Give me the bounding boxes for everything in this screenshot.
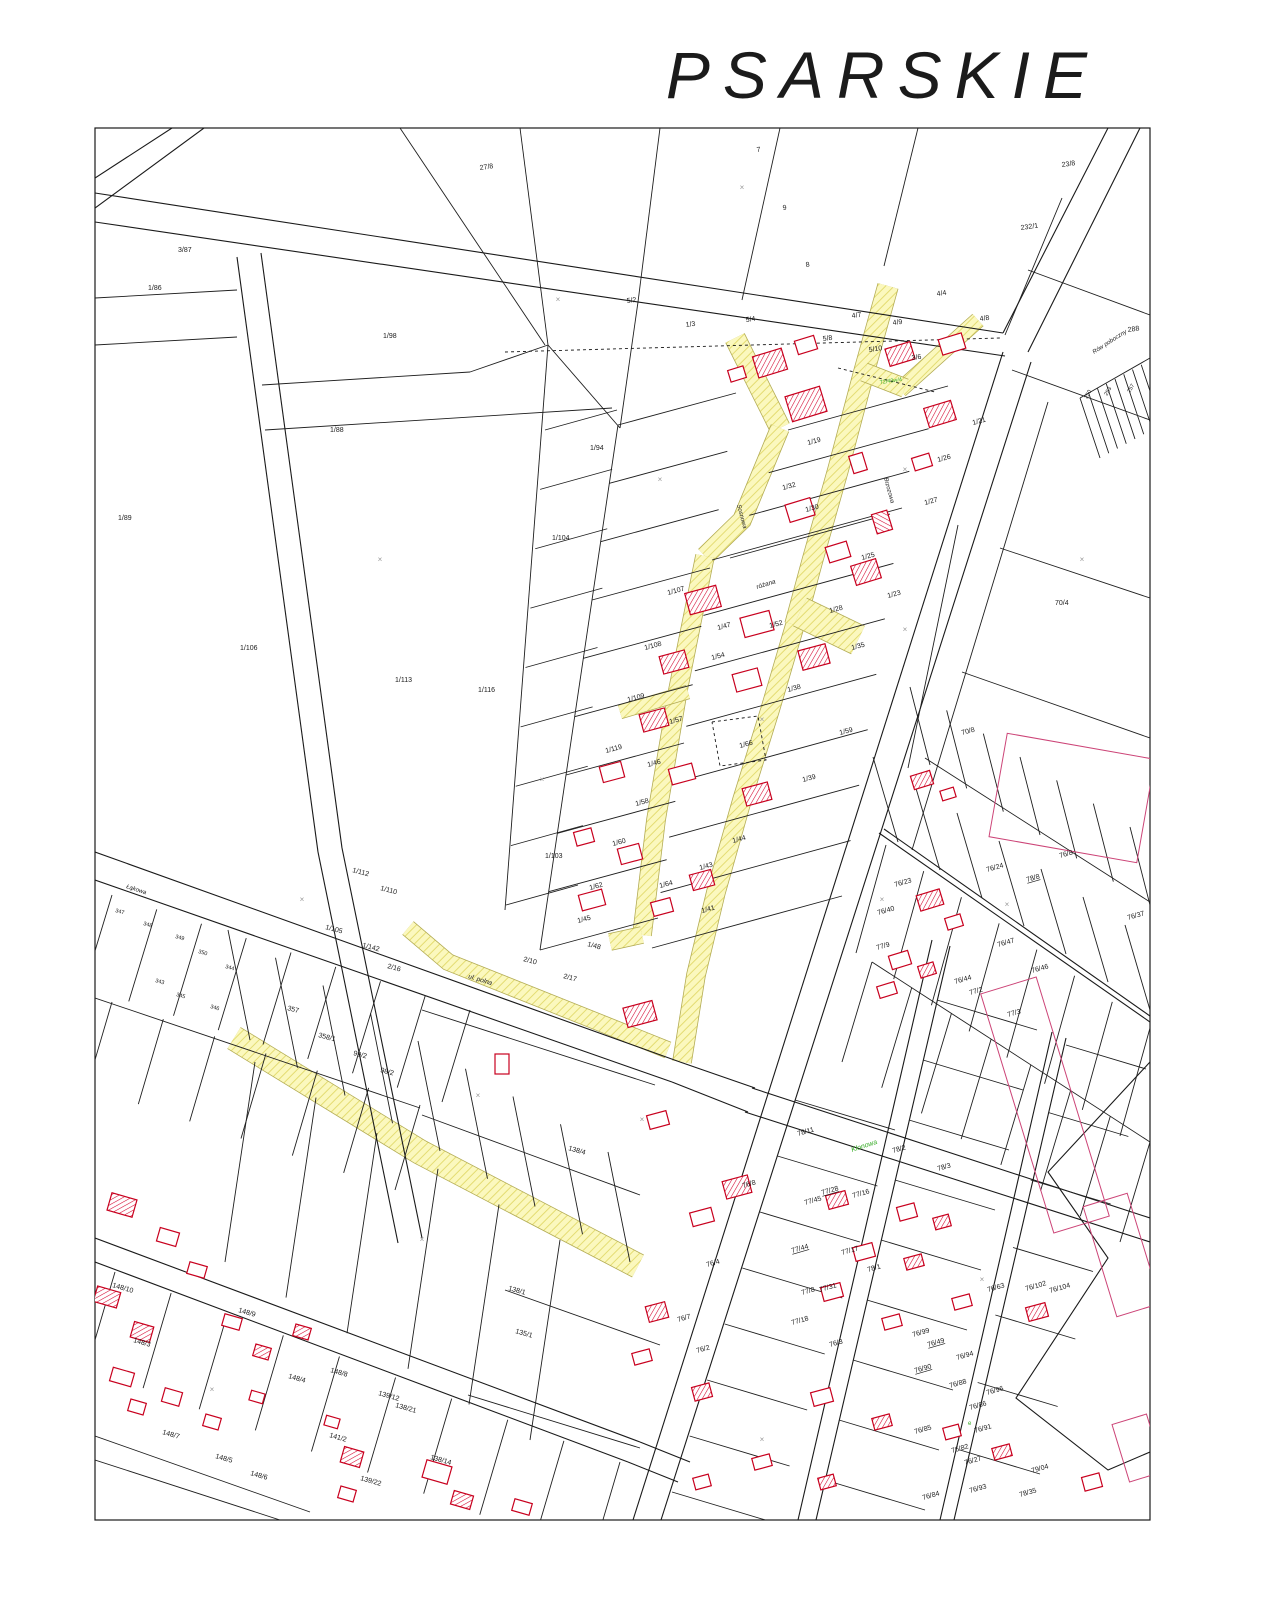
grid-cross: × [378,555,383,564]
parcel-boundary-line [95,1436,310,1512]
parcel-subdivision-line [842,962,872,1062]
parcel-subdivision-line [725,1324,825,1354]
parcel-number-label: 77/16 [852,1188,871,1200]
building-footprint [107,1193,137,1217]
parcel-number-label: 8 [805,261,810,268]
parcel-number-label: 232/1 [1020,223,1038,232]
parcel-number-label: 76/24 [986,862,1005,874]
parcel-number-label: 253 [1104,386,1114,397]
parcel-subdivision-line [506,885,578,905]
parcel-number-label: 76/86 [969,1400,988,1412]
parcel-subdivision-line [1007,950,1037,1058]
parcel-subdivision-line [540,469,612,489]
building-footprint [933,1214,952,1230]
parcel-boundary-line [470,345,548,372]
building-footprint [340,1447,364,1468]
parcel-subdivision-line [535,529,607,549]
building-footprint [911,453,932,471]
road-line [318,852,398,1243]
parcel-subdivision-line [957,813,982,898]
parcel-number-label: 148/8 [329,1367,348,1379]
street-name-label: Rów poboczny [1092,329,1129,356]
highlighted-road [800,612,858,640]
parcel-number-label: 350 [197,949,207,957]
parcel-subdivision-line [873,757,898,842]
parcel-subdivision-line [618,393,736,425]
parcel-subdivision-line [1098,389,1118,449]
building-footprint [578,889,605,911]
parcel-number-label: 2/10 [522,956,537,966]
building-footprint [918,962,937,978]
parcel-number-label: 76/99 [912,1327,931,1339]
parcel-subdivision-line [690,1436,790,1466]
grid-cross: × [740,183,745,192]
parcel-number-label: e [968,1421,972,1427]
map-page: PSARSKIE ××××××××××××××××××27/879823/823… [0,0,1280,1600]
grid-cross: × [476,1091,481,1100]
parcel-subdivision-line [923,1060,1023,1090]
parcel-number-label: 76/96 [986,1385,1005,1397]
parcel-subdivision-line [138,1019,163,1104]
building-footprint [940,787,956,801]
parcel-subdivision-line [1080,1116,1110,1216]
parcel-subdivision-line [469,1204,499,1404]
road-line [342,848,422,1238]
parcel-number-label: 349 [174,934,184,942]
parcel-boundary-line [638,128,660,302]
parcel-number-label: 76/82 [951,1443,970,1455]
building-footprint [888,950,911,969]
parcel-number-label: 1/142 [361,942,380,953]
parcel-subdivision-line [1080,398,1100,458]
parcel-subdivision-line [853,1360,953,1390]
parcel-number-label: 1/103 [545,853,563,860]
parcel-number-label: 138/21 [394,1402,417,1415]
parcel-number-label: 76/8 [1059,849,1074,860]
building-footprint [882,1314,902,1330]
road-line [680,1062,755,1088]
parcel-boundary-line [1000,548,1150,598]
parcel-number-label: 76/104 [1049,1282,1072,1295]
parcel-number-label: 358/1 [317,1032,336,1043]
parcel-number-label: 76/49 [927,1337,946,1349]
parcel-subdivision-line [881,1240,981,1270]
building-footprint [693,1474,712,1490]
building-footprint [877,982,898,999]
parcel-number-label: 3/6 [911,354,922,362]
parcel-boundary-line [262,372,470,385]
building-footprint [203,1414,222,1430]
building-footprint [1026,1303,1049,1322]
parcel-number-label: 4/7 [851,312,862,320]
parcel-number-label: 1/119 [605,744,623,755]
parcel-number-label: 1/86 [148,285,162,292]
parcel-subdivision-line [241,1054,266,1139]
road-line [816,946,950,1520]
street-name-label: Brzozowa [882,477,895,505]
parcel-number-label: 1/38 [787,684,802,694]
parcel-subdivision-line [777,1156,877,1186]
parcel-subdivision-line [760,1212,860,1242]
parcel-subdivision-line [1001,1065,1031,1165]
parcel-number-label: 1/39 [802,774,817,784]
parcel-number-label: 1/105 [324,924,343,935]
grid-cross: × [210,1385,215,1394]
parcel-subdivision-line [882,988,912,1088]
parcel-boundary-line [520,128,548,345]
parcel-number-label: 1/116 [478,687,495,694]
parcel-number-label: 1/94 [590,445,604,452]
parcel-boundary-line [548,345,620,428]
building-footprint [690,1207,715,1226]
parcel-subdivision-line [1041,1091,1071,1191]
building-footprint [924,400,957,427]
parcel-number-label: 77/45 [804,1195,823,1207]
grid-cross: × [880,895,885,904]
building-footprint [128,1399,147,1415]
parcel-number-label: 344 [224,964,234,972]
building-footprint [450,1491,473,1510]
parcel-subdivision-line [947,710,967,788]
parcel-number-label: 288 [1127,325,1140,334]
street-name-label: Klonowa [850,1139,878,1154]
parcel-number-label: 5/4 [745,316,756,324]
parcel-subdivision-line [190,1036,215,1121]
parcel-subdivision-line [1093,804,1113,882]
parcel-number-label: 77/8 [801,1286,816,1297]
parcel-subdivision-line [397,996,425,1088]
parcel-subdivision-line [442,1010,470,1102]
parcel-boundary-line [265,408,612,430]
building-footprint [156,1228,179,1247]
parcel-subdivision-line [1120,1028,1150,1136]
parcel-number-label: 76/3 [829,1338,844,1349]
building-footprint [871,510,892,534]
road-line [95,222,1005,356]
parcel-number-label: 357 [286,1005,299,1015]
map-title: PSARSKIE [666,38,1100,112]
parcel-number-label: 2/16 [386,963,401,973]
parcel-number-label: 76/7 [677,1313,692,1324]
parcel-subdivision-line [1125,925,1150,1010]
grid-cross: × [760,715,765,724]
parcel-number-label: 76/37 [1127,910,1146,922]
parcel-boundary-line [95,998,420,1108]
parcel-number-label: 1/21 [972,417,987,427]
parcel-number-label: 7 [756,146,761,153]
parcel-number-label: 76/88 [949,1378,968,1390]
parcel-subdivision-line [418,1041,440,1151]
parcel-number-label: 23/8 [1061,160,1076,169]
parcel-subdivision-line [1130,827,1150,905]
building-footprint [910,770,933,789]
building-footprint [992,1444,1012,1460]
parcel-number-label: 1/88 [330,427,344,434]
road-line [95,128,172,178]
cadastral-map: PSARSKIE ××××××××××××××××××27/879823/823… [0,0,1280,1600]
parcel-number-label: 4/9 [892,319,903,327]
parcel-number-label: 77/3 [1007,1008,1022,1019]
parcel-subdivision-line [910,687,930,765]
parcel-number-label: 4/8 [979,315,990,323]
building-footprint [794,335,817,354]
parcel-number-label: 1/113 [395,677,412,684]
parcel-subdivision-line [87,1272,115,1367]
grid-cross: × [658,475,663,484]
grid-cross: × [540,775,545,784]
parcel-number-label: 9 [782,204,787,211]
parcel-subdivision-line [1141,365,1161,425]
street-name-label: różana [756,578,777,591]
parcel-number-label: 1/23 [887,590,902,600]
parcel-subdivision-line [909,1120,1009,1150]
large-building-outline [989,733,1155,862]
parcel-boundary-line [1005,198,1062,335]
parcel-subdivision-line [1150,360,1170,420]
parcel-subdivision-line [867,1300,967,1330]
parcel-number-label: 79/04 [1031,1463,1050,1475]
parcel-number-label: 70/8 [961,727,976,737]
building-footprint [885,342,915,367]
parcel-subdivision-line [961,1039,991,1139]
parcel-number-label: 4/4 [936,290,947,298]
parcel-number-label: 3/87 [178,247,192,254]
parcel-number-label: 76/47 [997,937,1016,949]
building-footprint [732,668,762,692]
grid-cross: × [1005,900,1010,909]
parcel-number-label: 1/3 [685,321,696,329]
parcel-subdivision-line [1013,1248,1093,1272]
parcel-boundary-line [742,128,780,300]
building-footprint [187,1262,208,1278]
parcel-number-label: 77/44 [791,1243,810,1255]
building-footprint [109,1367,134,1387]
building-footprint [645,1302,668,1323]
parcel-number-label: 1/27 [924,497,939,507]
parcel-subdivision-line [199,1314,227,1409]
parcel-number-label: 1/19 [807,437,822,447]
parcel-subdivision-line [652,896,842,948]
parcel-subdivision-line [87,1002,112,1087]
parcel-number-label: 5/2 [626,297,637,305]
parcel-subdivision-line [480,1420,508,1515]
parcel-subdivision-line [1041,869,1066,954]
parcel-subdivision-line [1057,780,1077,858]
parcel-number-label: 5/10 [868,345,883,354]
parcel-number-label: 76/90 [914,1363,933,1375]
building-footprint [632,1349,652,1365]
parcel-number-label: 77/9 [876,941,891,952]
parcel-subdivision-line [795,1100,895,1130]
parcel-number-label: 135/1 [514,1328,533,1340]
parcel-number-label: 1/32 [782,482,797,492]
parcel-subdivision-line [521,707,593,727]
grid-cross: × [903,625,908,634]
parcel-boundary-line [872,962,1150,1142]
parcel-number-label: 76/85 [914,1424,933,1436]
parcel-number-label: 1/43 [699,862,714,872]
building-footprint [495,1054,509,1074]
parcel-number-label: 1/60 [612,838,627,848]
building-footprint [872,1414,892,1430]
parcel-subdivision-line [536,1441,564,1536]
parcel-number-label: 1/104 [552,535,570,542]
parcel-boundary-line [95,290,237,298]
parcel-number-label: 78/8 [1026,873,1041,884]
building-footprint [253,1344,272,1360]
grid-cross: × [1080,555,1085,564]
parcel-boundary-line [468,1395,640,1448]
building-footprint [728,366,747,382]
parcel-number-label: 98/2 [379,1067,394,1077]
parcel-subdivision-line [921,1013,951,1113]
building-footprint [338,1486,357,1502]
building-footprint [825,541,851,563]
parcel-subdivision-line [353,981,381,1073]
parcel-subdivision-line [1120,1142,1150,1242]
parcel-subdivision-line [601,510,719,542]
parcel-number-label: 99/2 [352,1050,367,1060]
parcel-number-label: 76/84 [922,1490,941,1502]
grid-cross: × [980,1275,985,1284]
parcel-number-label: 139/22 [359,1475,382,1488]
parcel-number-label: 76/44 [954,974,973,986]
parcel-subdivision-line [408,1169,438,1369]
parcel-number-label: 76/102 [1025,1280,1048,1293]
parcel-number-label: 343 [154,978,164,986]
parcel-number-label: 2/17 [562,973,577,983]
parcel-number-label: 348 [142,921,152,929]
parcel-number-label: 347 [114,908,124,916]
parcel-subdivision-line [661,841,851,893]
parcel-number-label: 148/7 [161,1429,180,1441]
grid-cross: × [903,465,908,474]
parcel-subdivision-line [347,1133,377,1333]
map-content: ××××××××××××××××××27/879823/8232/1288Rów… [84,128,1170,1557]
parcel-number-label: 5/8 [822,335,833,343]
parcel-number-label: 1/98 [383,333,397,340]
parcel-boundary-line [95,337,237,345]
parcel-number-label: 138/4 [567,1145,586,1157]
parcel-number-label: 257 [1127,383,1137,394]
building-footprint [916,889,944,911]
parcel-number-label: 1/89 [118,515,132,522]
parcel-subdivision-line [672,1492,772,1522]
parcel-number-label: 1/64 [659,880,674,890]
building-footprint [818,1474,837,1490]
parcel-number-label: 76/40 [877,905,896,917]
parcel-number-label: 148/4 [287,1373,306,1385]
parcel-number-label: 78/11 [797,1126,815,1137]
parcel-number-label: 1/59 [839,727,854,737]
building-footprint [785,386,827,421]
parcel-boundary-line [962,672,1150,738]
building-footprint [573,828,594,846]
parcel-boundary-line [422,1010,655,1085]
parcel-subdivision-line [466,1069,488,1179]
parcel-number-label: 78/2 [892,1144,907,1155]
parcel-number-label: 76/63 [987,1282,1006,1294]
building-footprint [849,452,868,473]
building-footprint [945,914,964,930]
parcel-boundary-line [540,425,618,950]
parcel-subdivision-line [1083,897,1108,982]
road-line [672,1082,748,1112]
building-footprint [811,1388,834,1407]
parcel-number-label: 1/110 [379,885,397,896]
building-footprint [623,1000,657,1027]
parcel-boundary-line [620,302,638,428]
parcel-number-label: 1/26 [937,454,952,464]
parcel-number-label: 1/108 [644,641,663,652]
grid-cross: × [640,1115,645,1124]
building-footprint [752,1454,772,1470]
building-footprint [896,1203,917,1221]
parcel-subdivision-line [592,1462,620,1557]
highlighted-road [610,935,642,942]
road-line [95,1238,640,1442]
parcel-number-label: 345 [175,992,185,1000]
parcel-number-label: 27/8 [479,163,494,172]
parcel-boundary-line [908,525,958,768]
parcel-subdivision-line [931,897,961,1005]
building-footprint [512,1499,533,1515]
building-footprint [691,1383,712,1401]
building-footprint [938,333,966,355]
parcel-boundary-line [400,128,545,345]
parcel-subdivision-line [228,930,250,1040]
parcel-number-label: 1/54 [711,652,726,662]
parcel-number-label: 138/1 [507,1285,526,1297]
parcel-subdivision-line [678,730,868,782]
large-building-outline [1083,1193,1161,1316]
building-footprint [1081,1473,1102,1491]
highlighted-road [705,428,780,556]
parcel-subdivision-line [84,895,112,987]
parcel-subdivision-line [511,826,583,846]
building-footprint [617,843,642,864]
parcel-subdivision-line [1124,374,1144,434]
parcel-number-label: 346 [209,1004,219,1012]
grid-cross: × [556,295,561,304]
parcel-subdivision-line [1089,393,1109,453]
parcel-number-label: 77/18 [791,1315,810,1327]
parcel-number-label: 1/58 [635,798,650,808]
parcel-number-label: 76/93 [969,1483,988,1495]
parcel-subdivision-line [707,1380,807,1410]
building-footprint [904,1254,924,1270]
grid-cross: × [760,1435,765,1444]
parcel-number-label: 1/45 [577,915,592,925]
parcel-subdivision-line [516,766,588,786]
parcel-number-label: 250 [1084,389,1094,400]
building-footprint [647,1111,670,1130]
parcel-boundary-line [884,128,918,266]
parcel-boundary-line [505,345,548,910]
parcel-number-label: 1/107 [667,586,686,597]
parcel-number-label: 1/28 [829,605,844,615]
grid-cross: × [300,895,305,904]
building-footprint [249,1390,265,1403]
road-line [261,253,342,848]
parcel-number-label: 78/3 [937,1162,952,1173]
parcel-subdivision-line [1066,1045,1146,1069]
parcel-subdivision-line [999,841,1024,926]
parcel-subdivision-line [1082,1002,1112,1110]
parcel-subdivision-line [545,410,617,430]
road-line [95,193,1003,333]
parcel-number-label: 76/27 [964,1455,983,1467]
